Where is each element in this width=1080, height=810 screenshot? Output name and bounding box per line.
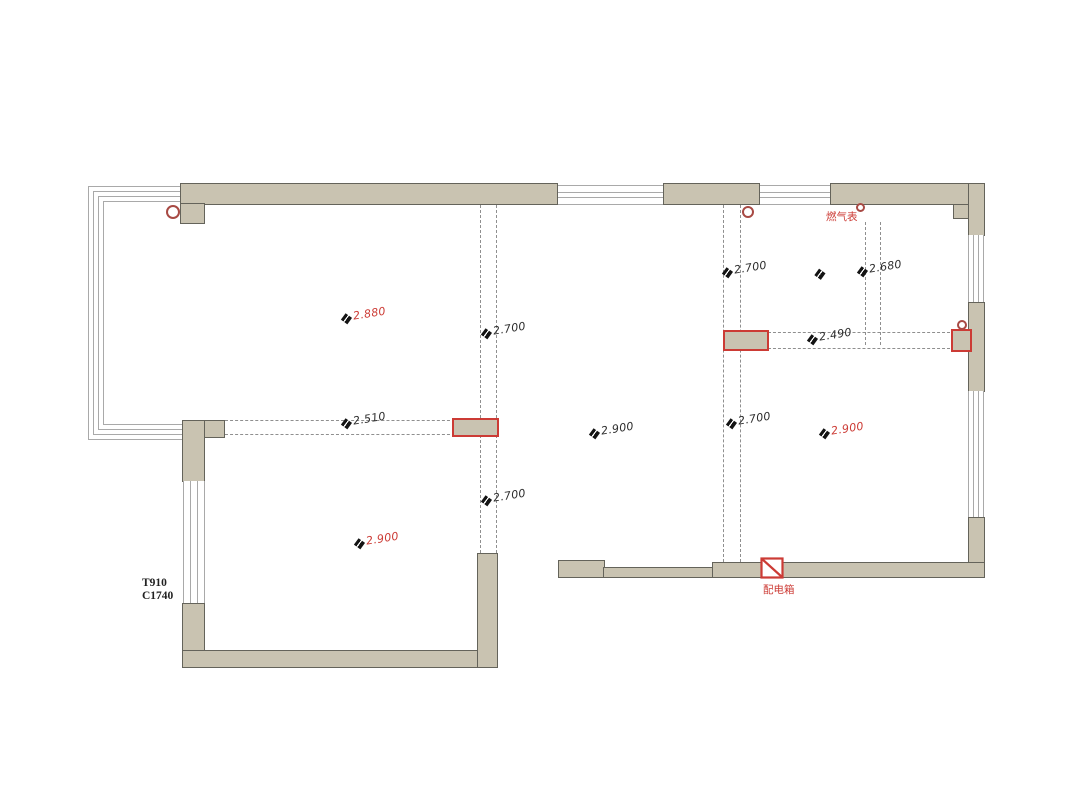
wall-segment: [968, 183, 985, 236]
dim-label: 2.490: [807, 326, 852, 346]
window: [183, 481, 205, 604]
window: [760, 185, 830, 205]
diamond-marker-icon: [722, 267, 733, 278]
wall-segment: [663, 183, 760, 205]
ceiling-dashed-line: [768, 348, 950, 349]
window: [968, 391, 984, 518]
red-highlight-box: [452, 418, 499, 437]
ceiling-dashed-line: [880, 222, 881, 345]
dim-label: 2.880: [341, 305, 386, 325]
diamond-marker-icon: [481, 495, 492, 506]
diamond-marker-icon: [819, 428, 830, 439]
dim-label: 2.700: [481, 320, 526, 340]
dim-label: 2.900: [589, 420, 634, 440]
dim-label: 2.900: [354, 530, 399, 550]
circle-marker-icon: [957, 320, 967, 330]
floor-plan-canvas: 燃气表 配电箱 T910C1740 2.880 2.700 2.700 2.68…: [0, 0, 1080, 810]
wall-segment: [477, 553, 498, 668]
wall-segment: [558, 560, 605, 578]
diamond-marker-icon: [354, 538, 365, 549]
dim-label: 2.510: [341, 410, 386, 430]
wall-segment: [182, 650, 497, 668]
wall-segment: [712, 562, 985, 578]
wall-segment: [953, 204, 969, 219]
dim-label: 2.700: [481, 487, 526, 507]
diamond-marker-icon: [726, 418, 737, 429]
distribution-box-icon: [760, 557, 784, 579]
wall-segment: [830, 183, 985, 205]
circle-marker-icon: [166, 205, 180, 219]
diamond-marker-icon: [807, 334, 818, 345]
dim-label: 2.900: [819, 420, 864, 440]
ceiling-dashed-line: [225, 434, 455, 435]
ceiling-dashed-line: [723, 205, 724, 562]
wall-segment: [182, 603, 205, 655]
ceiling-dashed-line: [225, 420, 455, 421]
dim-label: 2.700: [722, 259, 767, 279]
dim-label: [815, 269, 827, 280]
diamond-marker-icon: [857, 266, 868, 277]
wall-segment: [180, 203, 205, 224]
diamond-marker-icon: [341, 418, 352, 429]
diamond-marker-icon: [481, 328, 492, 339]
distribution-box-label: 配电箱: [763, 582, 795, 597]
gas-meter-icon: [856, 203, 865, 212]
red-highlight-box: [723, 330, 769, 351]
wall-segment: [180, 183, 558, 205]
diamond-marker-icon: [814, 269, 825, 280]
red-highlight-box: [951, 329, 972, 352]
diamond-marker-icon: [589, 428, 600, 439]
ceiling-dashed-line: [865, 222, 866, 345]
ceiling-dashed-line: [768, 332, 950, 333]
window: [968, 235, 984, 303]
window-code: T910C1740: [142, 577, 173, 603]
wall-segment: [182, 420, 205, 482]
window: [558, 185, 663, 205]
wall-segment: [603, 567, 714, 578]
balcony-window-frame: [103, 201, 182, 425]
ceiling-dashed-line: [740, 205, 741, 562]
diamond-marker-icon: [341, 313, 352, 324]
dim-label: 2.700: [726, 410, 771, 430]
gas-meter-label: 燃气表: [826, 209, 858, 224]
circle-marker-icon: [742, 206, 754, 218]
